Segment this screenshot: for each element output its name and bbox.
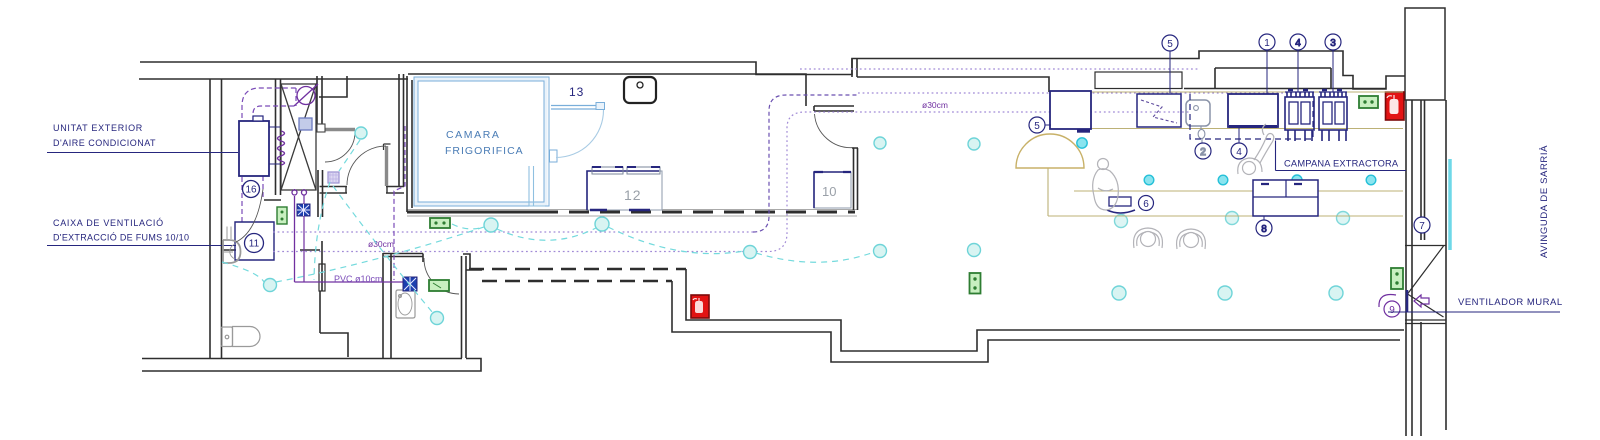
svg-text:ø30cm: ø30cm [922,100,948,110]
svg-text:PVC ø10cm: PVC ø10cm [334,274,383,284]
svg-text:4: 4 [1295,38,1301,49]
svg-text:11: 11 [249,239,260,250]
svg-text:10: 10 [822,184,836,199]
svg-text:ø30cm: ø30cm [368,239,394,249]
svg-text:5: 5 [1034,121,1040,132]
svg-text:5: 5 [1167,39,1173,50]
svg-text:VENTILADOR MURAL: VENTILADOR MURAL [1458,297,1563,308]
svg-text:3: 3 [1330,38,1336,49]
svg-text:16: 16 [245,185,257,196]
svg-text:CAMARA: CAMARA [446,129,501,141]
svg-text:6: 6 [1143,199,1149,210]
svg-text:AVINGUDA DE SARRIÀ: AVINGUDA DE SARRIÀ [1539,145,1550,258]
svg-text:D'EXTRACCIÓ DE FUMS 10/10: D'EXTRACCIÓ DE FUMS 10/10 [53,233,189,243]
svg-text:13: 13 [569,85,584,99]
svg-text:CAIXA DE VENTILACIÓ: CAIXA DE VENTILACIÓ [53,218,164,228]
svg-text:1: 1 [1264,38,1270,49]
svg-text:7: 7 [1419,221,1425,232]
svg-text:4: 4 [1236,147,1242,158]
svg-text:12: 12 [624,187,642,203]
svg-text:D'AIRE CONDICIONAT: D'AIRE CONDICIONAT [53,138,156,148]
svg-text:9: 9 [1389,305,1395,316]
svg-text:UNITAT EXTERIOR: UNITAT EXTERIOR [53,123,143,133]
svg-text:FRIGORIFICA: FRIGORIFICA [445,145,524,157]
svg-text:8: 8 [1261,224,1267,235]
svg-text:CAMPANA EXTRACTORA: CAMPANA EXTRACTORA [1284,159,1399,169]
svg-text:2: 2 [1200,147,1206,158]
